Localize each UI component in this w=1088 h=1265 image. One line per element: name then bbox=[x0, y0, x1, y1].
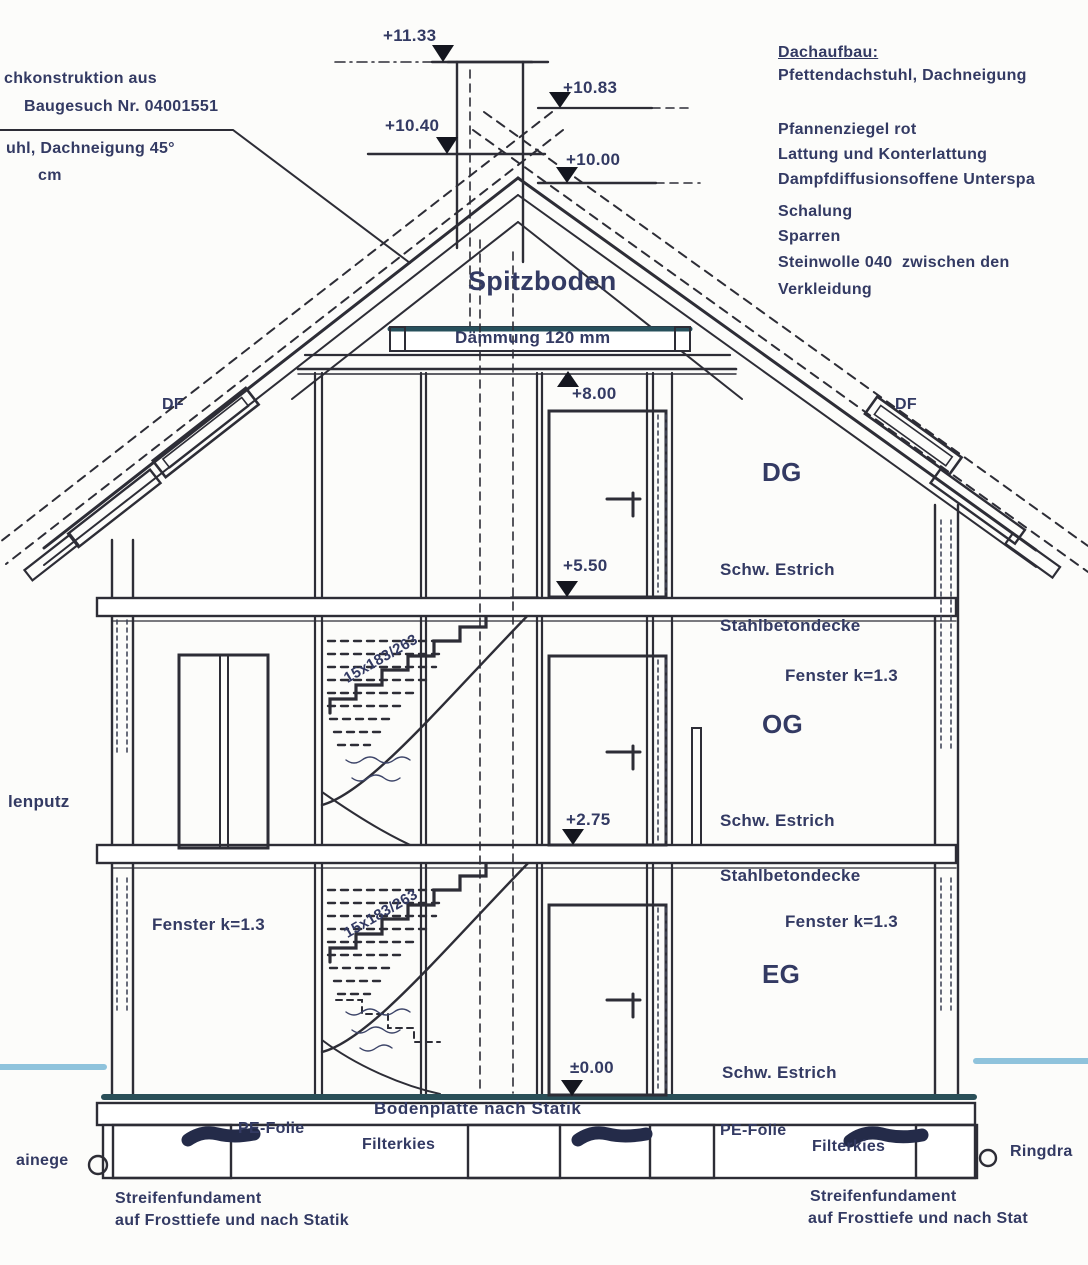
staircase-upper-flight bbox=[322, 598, 538, 863]
roof-layer-membrane: Dampfdiffusionsoffene Unterspa bbox=[778, 171, 1035, 189]
note-roof-pitch: uhl, Dachneigung 45° bbox=[6, 140, 175, 158]
elevation-spitzboden-floor: +8.00 bbox=[572, 384, 617, 404]
elevation-chimney-shoulder: +10.40 bbox=[385, 116, 439, 136]
insulation-band-label: Dämmung 120 mm bbox=[455, 328, 610, 348]
base-slab-label: Bodenplatte nach Statik bbox=[374, 1099, 581, 1119]
elevation-og-floor: +2.75 bbox=[566, 810, 611, 830]
roof-layer-rafters: Sparren bbox=[778, 228, 841, 246]
room-label-dg: DG bbox=[762, 458, 802, 488]
water-level-lines bbox=[0, 1061, 1088, 1067]
section-drawing-linework bbox=[0, 0, 1088, 1265]
building-section-drawing: chkonstruktion aus Baugesuch Nr. 0400155… bbox=[0, 0, 1088, 1265]
drainage-label-left: ainege bbox=[16, 1152, 69, 1170]
elevation-dg-floor: +5.50 bbox=[563, 556, 608, 576]
elevation-ridge: +10.83 bbox=[563, 78, 617, 98]
stair-hatch-rows bbox=[328, 641, 450, 994]
slab-label-og: Stahlbetondecke bbox=[720, 866, 861, 886]
filter-gravel-label-right: Filterkies bbox=[812, 1138, 885, 1156]
facade-plaster-label: lenputz bbox=[8, 792, 70, 812]
note-construction-from: chkonstruktion aus bbox=[4, 70, 157, 88]
screed-label-dg: Schw. Estrich bbox=[720, 560, 835, 580]
roof-layer-tiles: Pfannenziegel rot bbox=[778, 121, 916, 139]
window-spec-eg-right: Fenster k=1.3 bbox=[785, 912, 898, 932]
interior-walls bbox=[315, 373, 701, 1096]
screed-label-og: Schw. Estrich bbox=[720, 811, 835, 831]
strip-footing-right-line1: Streifenfundament bbox=[810, 1188, 956, 1206]
window-spec-eg-left: Fenster k=1.3 bbox=[152, 915, 265, 935]
room-label-eg: EG bbox=[762, 960, 800, 990]
roof-layer-insulation: Steinwolle 040 zwischen den bbox=[778, 254, 1010, 272]
exterior-walls bbox=[112, 505, 958, 1096]
pe-foil-label-left: PE-Folie bbox=[238, 1120, 304, 1138]
staircase-lower-flight bbox=[322, 847, 538, 1094]
roof-layer-battens: Lattung und Konterlattung bbox=[778, 146, 987, 164]
slab-label-dg: Stahlbetondecke bbox=[720, 616, 861, 636]
strip-footing-left-line2: auf Frosttiefe und nach Statik bbox=[115, 1212, 349, 1230]
screed-label-eg: Schw. Estrich bbox=[722, 1063, 837, 1083]
roof-layer-cladding: Verkleidung bbox=[778, 281, 872, 299]
roof-spec-system: Pfettendachstuhl, Dachneigung bbox=[778, 67, 1027, 85]
roof-spec-title: Dachaufbau: bbox=[778, 44, 878, 62]
window-og-left bbox=[179, 655, 268, 848]
elevation-eg-floor: ±0.00 bbox=[570, 1058, 614, 1078]
wall-hatch-strips bbox=[117, 415, 951, 1088]
elevation-ridge-lower: +10.00 bbox=[566, 150, 620, 170]
note-building-permit: Baugesuch Nr. 04001551 bbox=[24, 98, 218, 116]
filter-gravel-label-left: Filterkies bbox=[362, 1136, 435, 1154]
room-label-og: OG bbox=[762, 710, 803, 740]
elevation-chimney-top: +11.33 bbox=[383, 26, 436, 46]
pe-foil-label-right: PE-Folie bbox=[720, 1122, 786, 1140]
roof-window-label-left: DF bbox=[162, 396, 184, 414]
window-spec-og-right: Fenster k=1.3 bbox=[785, 666, 898, 686]
roof-window-label-right: DF bbox=[895, 396, 917, 414]
roof-layer-boarding: Schalung bbox=[778, 203, 852, 221]
strip-footing-left-line1: Streifenfundament bbox=[115, 1190, 261, 1208]
note-cm: cm bbox=[38, 167, 62, 185]
strip-footing-right-line2: auf Frosttiefe und nach Stat bbox=[808, 1210, 1028, 1228]
room-label-spitzboden: Spitzboden bbox=[468, 266, 616, 297]
drainage-label-right: Ringdra bbox=[1010, 1143, 1073, 1161]
